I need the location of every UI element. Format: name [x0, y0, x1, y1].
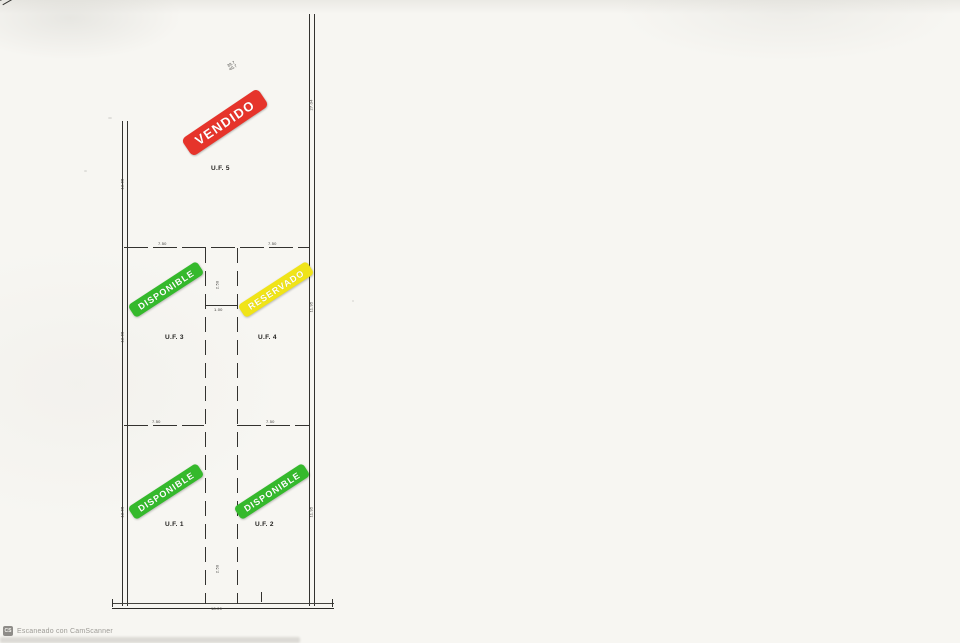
status-sticker-disponible-1: DISPONIBLE — [128, 261, 205, 318]
unit-label-uf2: U.F. 2 — [255, 521, 274, 528]
divider-line-lower-right — [237, 425, 310, 426]
tick-mark — [332, 599, 333, 607]
dimension-label: 12.65 — [121, 331, 125, 342]
dimension-label: 7.50 — [266, 420, 275, 424]
dimension-label: 7.50 — [268, 242, 277, 246]
unit-label-uf1: U.F. 1 — [165, 521, 184, 528]
unit-label-uf5: U.F. 5 — [211, 165, 230, 172]
dimension-label: 13.65 — [121, 178, 125, 189]
corridor-line-right — [237, 248, 238, 604]
scanned-plan-page: 39.7 40.7 13.65 12.65 12.65 27.04 11.95 … — [0, 0, 960, 640]
dimension-label: 12.65 — [121, 506, 125, 517]
tick-mark — [261, 592, 262, 602]
boundary-line-top-slant — [0, 0, 209, 5]
corridor-line-left — [205, 248, 206, 604]
camscanner-watermark: CS Escaneado con CamScanner — [3, 626, 113, 636]
dimension-text: 40.7 — [229, 64, 238, 72]
camscanner-watermark-text: Escaneado con CamScanner — [17, 628, 113, 635]
dimension-label: 7.50 — [152, 420, 161, 424]
cropped-watermark-smudge — [0, 637, 300, 643]
dimension-label: 11.95 — [309, 302, 313, 313]
dimension-label: 27.04 — [310, 99, 314, 110]
dimension-label: 7.50 — [158, 242, 167, 246]
dimension-label: 1.00 — [214, 308, 223, 312]
status-sticker-disponible-2: DISPONIBLE — [128, 463, 205, 520]
site-plan-drawing: 39.7 40.7 13.65 12.65 12.65 27.04 11.95 … — [0, 0, 960, 640]
dimension-label: 18.00 — [211, 607, 222, 611]
dimension-label: 39.7 40.7 — [227, 60, 238, 71]
unit-label-uf3: U.F. 3 — [165, 334, 184, 341]
boundary-line-left — [122, 121, 128, 606]
unit-label-uf4: U.F. 4 — [258, 334, 277, 341]
dimension-label: 11.95 — [309, 507, 313, 518]
dimension-label: 2.50 — [215, 281, 219, 290]
divider-line-upper — [124, 247, 310, 248]
tick-mark — [112, 599, 113, 607]
divider-line-lower-left — [124, 425, 204, 426]
boundary-line-bottom — [112, 603, 334, 609]
dimension-label: 2.50 — [215, 565, 219, 574]
status-sticker-disponible-3: DISPONIBLE — [234, 463, 311, 520]
corridor-cross-line — [205, 305, 238, 306]
camscanner-cs-icon: CS — [3, 626, 13, 636]
status-sticker-vendido: VENDIDO — [181, 88, 269, 157]
status-sticker-reservado: RESERVADO — [238, 261, 315, 318]
